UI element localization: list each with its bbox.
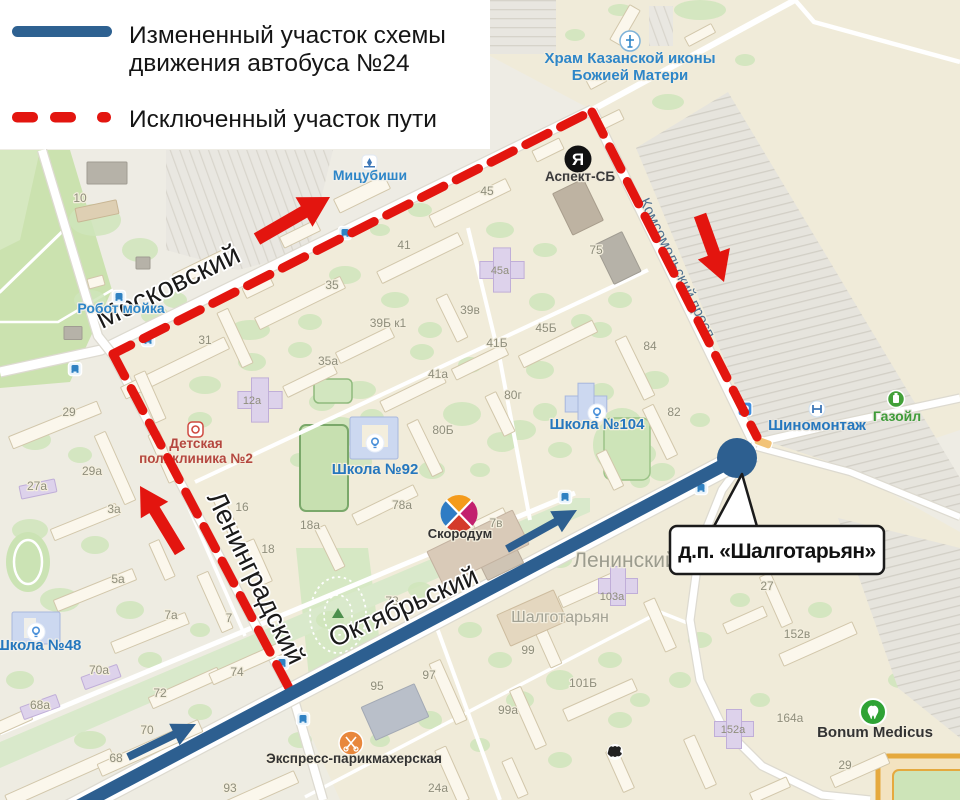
svg-text:70: 70 xyxy=(140,723,154,737)
svg-text:95: 95 xyxy=(370,679,384,693)
svg-text:3а: 3а xyxy=(107,502,121,516)
svg-text:движения автобуса №24: движения автобуса №24 xyxy=(129,50,410,77)
svg-text:29: 29 xyxy=(838,758,852,772)
svg-text:Измененный участок схемы: Измененный участок схемы xyxy=(129,22,446,49)
svg-text:41: 41 xyxy=(397,238,411,252)
svg-text:101Б: 101Б xyxy=(569,676,597,690)
svg-text:R: R xyxy=(572,150,584,169)
svg-text:45а: 45а xyxy=(491,265,510,277)
svg-text:164а: 164а xyxy=(777,711,804,725)
svg-text:7: 7 xyxy=(226,611,233,625)
svg-text:84: 84 xyxy=(643,339,657,353)
svg-text:Bonum Medicus: Bonum Medicus xyxy=(817,724,933,741)
svg-text:80г: 80г xyxy=(504,388,522,402)
svg-text:68а: 68а xyxy=(30,698,50,712)
svg-text:80Б: 80Б xyxy=(432,423,453,437)
svg-text:Ленинский: Ленинский xyxy=(573,549,677,572)
svg-text:29а: 29а xyxy=(82,464,102,478)
svg-text:45: 45 xyxy=(480,184,494,198)
svg-text:Детская: Детская xyxy=(169,436,222,451)
svg-text:152а: 152а xyxy=(721,724,746,736)
svg-text:18а: 18а xyxy=(300,518,320,532)
svg-text:Робот мойка: Робот мойка xyxy=(77,300,164,316)
svg-text:18: 18 xyxy=(261,542,275,556)
svg-text:поликлиника №2: поликлиника №2 xyxy=(139,451,253,466)
svg-text:Аспект-СБ: Аспект-СБ xyxy=(545,169,615,184)
svg-text:35: 35 xyxy=(325,278,339,292)
svg-text:Мицубиши: Мицубиши xyxy=(333,167,407,183)
svg-text:45Б: 45Б xyxy=(535,321,556,335)
svg-text:103а: 103а xyxy=(600,591,625,603)
svg-text:Экспресс-парикмахерская: Экспресс-парикмахерская xyxy=(266,751,442,766)
svg-text:75: 75 xyxy=(589,243,603,257)
svg-text:97: 97 xyxy=(422,668,436,682)
svg-text:41Б: 41Б xyxy=(486,336,507,350)
svg-text:Божией Матери: Божией Матери xyxy=(572,67,688,84)
svg-text:82: 82 xyxy=(667,405,681,419)
svg-text:70а: 70а xyxy=(89,663,109,677)
svg-text:27: 27 xyxy=(760,579,774,593)
svg-text:Школа №104: Школа №104 xyxy=(550,416,646,433)
svg-text:39в: 39в xyxy=(460,303,480,317)
svg-text:д.п. «Шалготарьян»: д.п. «Шалготарьян» xyxy=(678,540,875,563)
svg-text:31: 31 xyxy=(198,333,212,347)
svg-text:74: 74 xyxy=(230,665,244,679)
svg-text:12а: 12а xyxy=(243,395,262,407)
svg-text:Шиномонтаж: Шиномонтаж xyxy=(768,417,866,434)
svg-text:Школа №92: Школа №92 xyxy=(332,461,419,478)
svg-text:78а: 78а xyxy=(392,498,412,512)
svg-text:41а: 41а xyxy=(428,367,448,381)
svg-text:99: 99 xyxy=(521,643,535,657)
svg-text:Скородум: Скородум xyxy=(428,526,492,541)
svg-text:27а: 27а xyxy=(27,479,47,493)
svg-text:152в: 152в xyxy=(784,627,810,641)
svg-text:29: 29 xyxy=(62,405,76,419)
svg-text:99а: 99а xyxy=(498,703,518,717)
svg-text:24а: 24а xyxy=(428,781,448,795)
svg-text:Шалготарьян: Шалготарьян xyxy=(511,609,609,626)
svg-text:39Б к1: 39Б к1 xyxy=(370,316,407,330)
svg-text:Исключенный участок пути: Исключенный участок пути xyxy=(129,106,437,133)
svg-text:Школа №48: Школа №48 xyxy=(0,637,81,654)
svg-text:Газойл: Газойл xyxy=(873,408,921,424)
svg-text:35а: 35а xyxy=(318,354,338,368)
svg-text:93: 93 xyxy=(223,781,237,795)
svg-text:5а: 5а xyxy=(111,572,125,586)
svg-text:7а: 7а xyxy=(164,608,178,622)
svg-text:68: 68 xyxy=(109,751,123,765)
svg-text:10: 10 xyxy=(73,191,87,205)
svg-text:72: 72 xyxy=(153,686,167,700)
svg-text:Храм Казанской иконы: Храм Казанской иконы xyxy=(544,50,715,67)
